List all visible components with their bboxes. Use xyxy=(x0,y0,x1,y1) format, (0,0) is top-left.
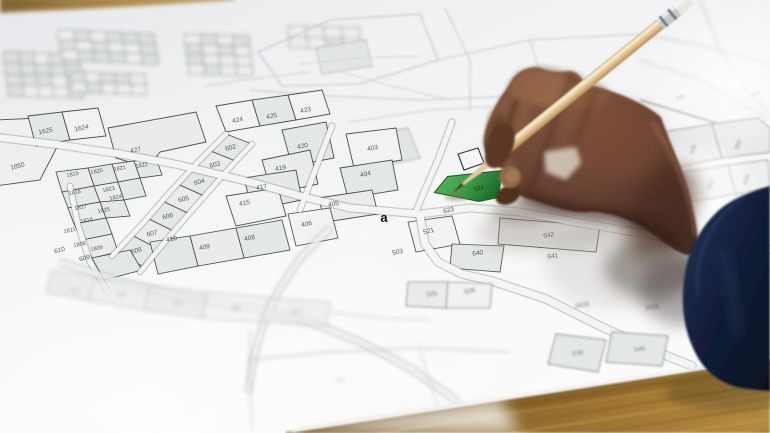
svg-text:a: a xyxy=(380,210,388,225)
